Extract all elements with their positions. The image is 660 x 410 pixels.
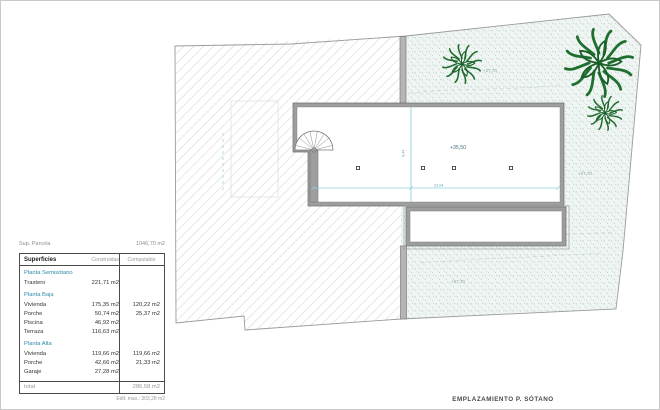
header-computable: Computable — [119, 257, 164, 263]
row-label: Garaje — [20, 368, 74, 377]
row-label: Trastero — [20, 279, 74, 288]
section-planta-semisotano: Planta Semisótano — [20, 266, 164, 279]
header-superficies: Superficies — [20, 257, 74, 263]
row-construida: 175,35 m2 — [74, 301, 119, 310]
section-planta-alta: Planta Alta — [20, 337, 164, 350]
table-row: Vivienda 175,35 m2 120,22 m2 — [20, 301, 164, 310]
row-construida: 27,28 m2 — [74, 368, 119, 377]
row-construida: 50,74 m2 — [74, 310, 119, 319]
table-row: Vivienda 119,66 m2 119,66 m2 — [20, 350, 164, 359]
row-label: Terraza — [20, 328, 74, 337]
max-edificability-note: Edif. max.: 303,28 m2 — [19, 396, 165, 402]
row-label: Porche — [20, 310, 74, 319]
drawing-caption: EMPLAZAMIENTO P. SÓTANO — [452, 394, 553, 403]
row-computable: 120,22 m2 — [119, 301, 164, 310]
total-spacer — [74, 382, 119, 393]
total-label: total — [20, 382, 74, 393]
row-computable — [119, 368, 164, 377]
row-label: Piscina — [20, 319, 74, 328]
garden-level-label-top: +27,70 — [483, 68, 497, 73]
row-computable: 21,33 m2 — [119, 359, 164, 368]
header-construidas: Construidas — [74, 257, 119, 263]
row-computable: 119,66 m2 — [119, 350, 164, 359]
drawing-sheet: 23,04 9,44 +35,50 +27,70 +27,70 +27,70 E… — [0, 0, 660, 410]
row-construida: 42,66 m2 — [74, 359, 119, 368]
lower-volume-interior — [410, 211, 562, 242]
row-label: Vivienda — [20, 301, 74, 310]
table-row: Garaje 27,28 m2 — [20, 368, 164, 377]
row-computable — [119, 279, 164, 288]
parcel-area-row: Sup. Parcela 1046,70 m2 — [19, 240, 165, 248]
row-computable — [119, 319, 164, 328]
dimension-height-label: 9,44 — [402, 150, 406, 157]
table-header-row: Superficies Construidas Computable — [20, 254, 164, 266]
garden-level-label-bottom: +27,70 — [451, 279, 465, 284]
row-computable: 25,37 m2 — [119, 310, 164, 319]
table-column-divider — [119, 254, 120, 393]
table-row: Terraza 116,63 m2 — [20, 328, 164, 337]
basement-level-label: +35,50 — [450, 145, 466, 151]
wall-stub-top — [400, 37, 406, 104]
areas-panel: Sup. Parcela 1046,70 m2 Superficies Cons… — [19, 240, 165, 402]
table-row: Piscina 46,92 m2 — [20, 319, 164, 328]
table-total-row: total 286,58 m2 — [20, 381, 164, 393]
row-construida: 46,92 m2 — [74, 319, 119, 328]
row-label: Porche — [20, 359, 74, 368]
table-row: Trastero 221,71 m2 — [20, 279, 164, 288]
parcel-area-label: Sup. Parcela — [19, 240, 51, 248]
dimension-width-label: 23,04 — [434, 183, 444, 187]
parcel-area-value: 1046,70 m2 — [136, 240, 165, 248]
garden-level-label-right: +27,70 — [578, 171, 592, 176]
row-construida: 221,71 m2 — [74, 279, 119, 288]
row-computable — [119, 328, 164, 337]
table-row: Porche 42,66 m2 21,33 m2 — [20, 359, 164, 368]
row-construida: 119,66 m2 — [74, 350, 119, 359]
wall-stub-bottom — [401, 246, 407, 319]
row-label: Vivienda — [20, 350, 74, 359]
section-planta-baja: Planta Baja — [20, 288, 164, 301]
areas-table: Superficies Construidas Computable Plant… — [19, 253, 165, 394]
row-construida: 116,63 m2 — [74, 328, 119, 337]
table-row: Porche 50,74 m2 25,37 m2 — [20, 310, 164, 319]
total-value: 286,58 m2 — [119, 382, 164, 393]
